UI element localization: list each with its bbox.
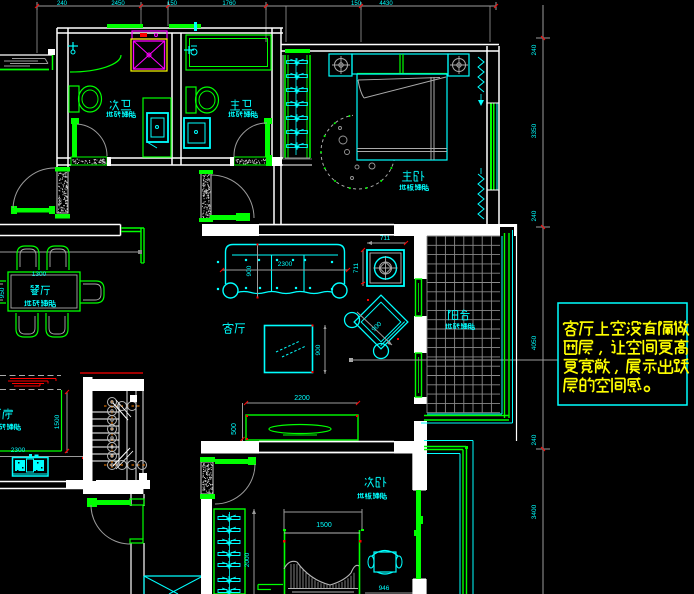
svg-text:3350: 3350 [531,123,538,138]
svg-text:900: 900 [315,344,322,355]
svg-text:1760: 1760 [222,1,236,7]
svg-text:150: 150 [351,1,362,7]
svg-text:1500: 1500 [54,414,61,429]
svg-text:2300: 2300 [11,447,26,454]
svg-text:711: 711 [353,262,360,273]
svg-text:240: 240 [531,210,538,221]
svg-text:1300: 1300 [32,271,47,278]
svg-text:2000: 2000 [244,552,251,567]
svg-text:500: 500 [231,423,238,435]
svg-text:900: 900 [246,265,253,276]
svg-text:711: 711 [380,235,391,242]
svg-text:2200: 2200 [294,395,310,402]
svg-text:240: 240 [531,434,538,445]
svg-text:4050: 4050 [531,335,538,350]
svg-text:2450: 2450 [111,1,125,7]
svg-text:4430: 4430 [379,1,393,7]
svg-text:2300: 2300 [278,261,293,268]
svg-text:946: 946 [379,585,390,592]
svg-text:3400: 3400 [531,504,538,519]
svg-text:240: 240 [531,44,538,55]
svg-text:150: 150 [167,1,178,7]
svg-text:950: 950 [0,287,6,298]
svg-text:240: 240 [57,1,68,7]
svg-text:1500: 1500 [316,522,332,529]
